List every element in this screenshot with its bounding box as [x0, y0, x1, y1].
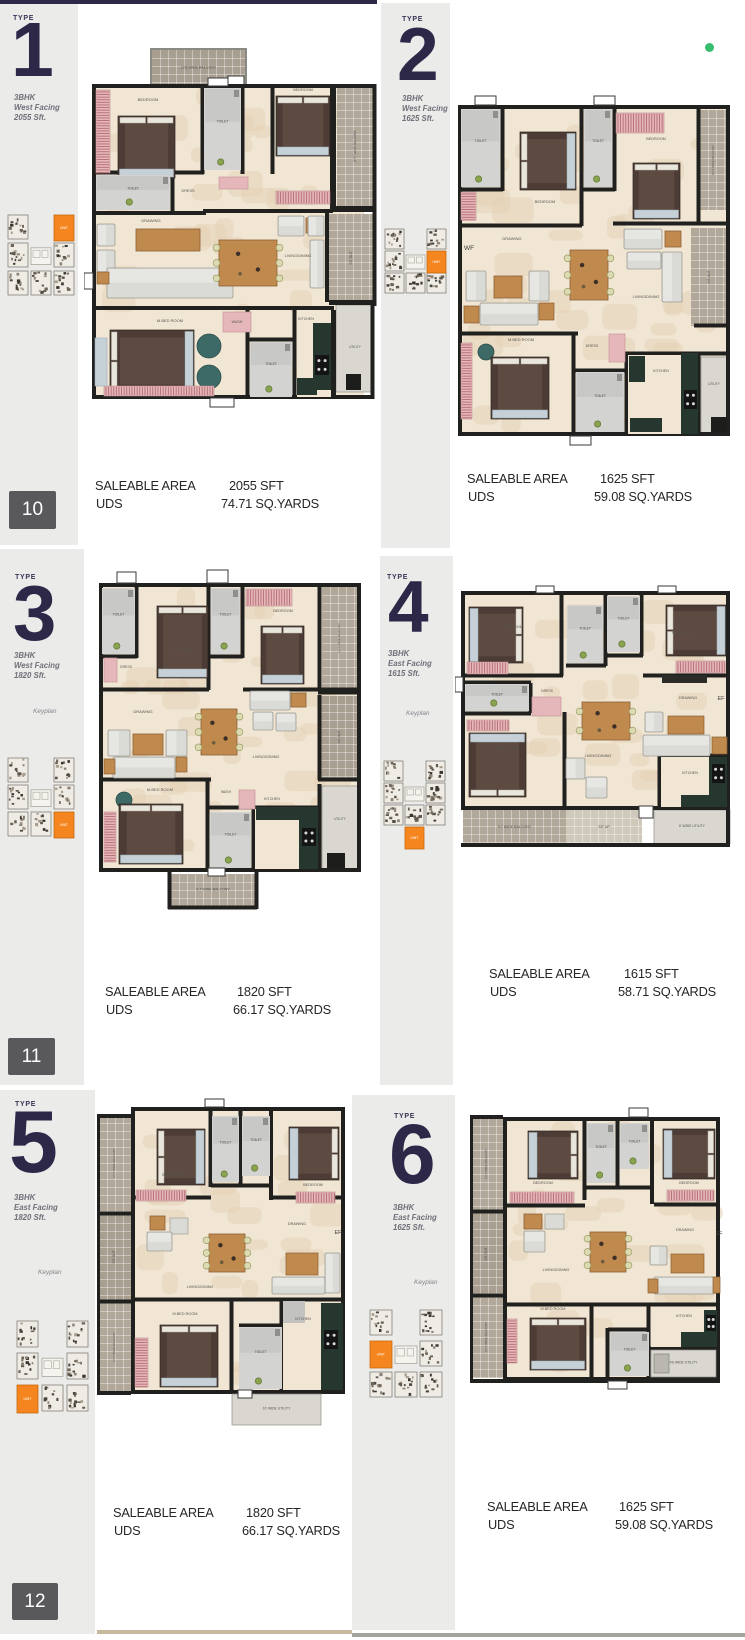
svg-text:TOILET: TOILET — [475, 139, 487, 143]
svg-text:KITCHEN: KITCHEN — [298, 317, 314, 321]
svg-text:BEDROOM: BEDROOM — [162, 1173, 182, 1177]
svg-text:SIT OUT: SIT OUT — [349, 251, 353, 264]
svg-text:BEDROOM: BEDROOM — [293, 88, 313, 92]
svg-text:6 FT WIDE BALCONY: 6 FT WIDE BALCONY — [112, 1332, 116, 1362]
svg-text:UNIT: UNIT — [60, 823, 68, 827]
svg-text:UNIT: UNIT — [377, 1353, 385, 1357]
svg-text:DRESS: DRESS — [120, 665, 132, 669]
svg-text:DRAWING: DRAWING — [676, 1228, 694, 1232]
svg-text:TOILET: TOILET — [217, 119, 229, 123]
svg-text:UNIT: UNIT — [60, 226, 68, 230]
svg-text:BEDROOM: BEDROOM — [679, 1181, 699, 1185]
svg-text:LIVING/DINING: LIVING/DINING — [253, 755, 280, 759]
svg-text:TOILET: TOILET — [127, 187, 139, 191]
svg-text:WF: WF — [464, 245, 474, 252]
svg-text:TOILET: TOILET — [624, 1348, 636, 1352]
svg-text:TOILET: TOILET — [220, 613, 232, 617]
svg-text:TOILET: TOILET — [113, 613, 125, 617]
svg-text:TOILET: TOILET — [629, 1139, 641, 1143]
svg-text:M.BED ROOM: M.BED ROOM — [541, 1307, 566, 1311]
svg-text:BEDROOM: BEDROOM — [303, 1183, 323, 1187]
svg-text:DRESS: DRESS — [541, 689, 553, 693]
svg-text:DRESS: DRESS — [181, 189, 195, 193]
svg-text:SIT UP: SIT UP — [598, 825, 610, 829]
svg-text:DRAWING: DRAWING — [133, 709, 152, 714]
svg-text:SIT OUT: SIT OUT — [112, 1250, 116, 1263]
svg-text:EF: EF — [717, 696, 725, 702]
svg-text:KITCHEN: KITCHEN — [295, 1317, 311, 1321]
svg-text:SIT OUT: SIT OUT — [337, 730, 341, 743]
svg-text:WASH: WASH — [232, 320, 243, 324]
svg-text:LIVING/DINING: LIVING/DINING — [187, 1285, 214, 1289]
svg-text:TOILET: TOILET — [592, 139, 604, 143]
svg-text:9.7 WIDE BALCONY: 9.7 WIDE BALCONY — [196, 888, 230, 892]
svg-text:TOILET: TOILET — [265, 362, 277, 366]
svg-text:BEDROOM: BEDROOM — [273, 609, 293, 613]
svg-text:6 FT WIDE BALCONY: 6 FT WIDE BALCONY — [337, 623, 341, 653]
svg-text:DRAWING: DRAWING — [288, 1222, 306, 1226]
svg-text:UNIT: UNIT — [411, 836, 419, 840]
svg-text:M.BED ROOM: M.BED ROOM — [157, 318, 183, 323]
svg-text:KITCHEN: KITCHEN — [264, 797, 280, 801]
svg-text:BEDROOM: BEDROOM — [533, 1181, 553, 1185]
svg-text:EF: EF — [334, 1230, 342, 1236]
svg-text:UTILITY: UTILITY — [349, 345, 362, 349]
svg-text:M.BED ROOM: M.BED ROOM — [173, 1312, 198, 1316]
svg-text:LIVING/DINING: LIVING/DINING — [585, 754, 612, 758]
svg-text:10' WIDE UTILITY: 10' WIDE UTILITY — [263, 1407, 292, 1411]
svg-text:TOILET: TOILET — [594, 394, 606, 398]
svg-text:TOILET: TOILET — [595, 1145, 607, 1149]
svg-text:TOILET: TOILET — [220, 1141, 232, 1145]
svg-text:12'8 WIDE BALCONY: 12'8 WIDE BALCONY — [181, 66, 217, 70]
svg-text:SIT OUT: SIT OUT — [707, 270, 711, 283]
svg-text:TOILET: TOILET — [250, 1138, 262, 1142]
svg-text:TOILET: TOILET — [225, 833, 237, 837]
svg-text:6 FT WIDE BALCONY: 6 FT WIDE BALCONY — [112, 1148, 116, 1178]
svg-text:UNIT: UNIT — [24, 1397, 32, 1401]
svg-text:DRAWING: DRAWING — [679, 696, 697, 700]
svg-text:TOILET: TOILET — [491, 692, 503, 696]
svg-text:EF: EF — [715, 1231, 723, 1237]
svg-text:TOILET: TOILET — [255, 1350, 267, 1354]
svg-text:BEDROOM: BEDROOM — [646, 137, 666, 141]
svg-text:TOILET: TOILET — [579, 626, 591, 630]
svg-text:8 FT WIDE BALCONY: 8 FT WIDE BALCONY — [711, 145, 715, 175]
svg-text:WASH: WASH — [221, 790, 232, 794]
svg-text:LIVING/DINING: LIVING/DINING — [285, 254, 312, 258]
svg-text:BEDROOM: BEDROOM — [172, 647, 192, 651]
svg-text:BEDROOM: BEDROOM — [672, 631, 692, 635]
svg-text:KITCHEN: KITCHEN — [653, 369, 669, 373]
svg-text:SIT OUT: SIT OUT — [484, 1247, 488, 1260]
svg-text:DRESS: DRESS — [586, 344, 599, 348]
svg-text:6' WIDE UTILITY: 6' WIDE UTILITY — [679, 824, 706, 828]
svg-text:LIVING/DINING: LIVING/DINING — [543, 1268, 570, 1272]
svg-text:M.BED ROOM: M.BED ROOM — [147, 787, 173, 792]
svg-text:UTILITY: UTILITY — [334, 817, 347, 821]
svg-text:TOILET: TOILET — [618, 617, 630, 621]
svg-text:8 FT WIDE BALCONY: 8 FT WIDE BALCONY — [353, 129, 357, 162]
svg-text:BEDROOM: BEDROOM — [535, 199, 556, 204]
svg-text:6 FT WIDE BALCONY: 6 FT WIDE BALCONY — [484, 1149, 488, 1179]
svg-text:UTILITY: UTILITY — [708, 382, 721, 386]
svg-text:M.BED ROOM: M.BED ROOM — [508, 337, 534, 342]
svg-text:6 FT WIDE BALCONY: 6 FT WIDE BALCONY — [484, 1322, 488, 1352]
svg-text:9.7 WIDE BALCONY: 9.7 WIDE BALCONY — [498, 825, 532, 829]
svg-text:BEDROOM: BEDROOM — [503, 625, 523, 629]
svg-text:DRAWING: DRAWING — [141, 218, 160, 223]
svg-text:LIVING/DINING: LIVING/DINING — [633, 295, 660, 299]
svg-text:UNIT: UNIT — [433, 260, 441, 264]
svg-text:M.BED ROOM: M.BED ROOM — [495, 746, 520, 750]
svg-text:DRAWING: DRAWING — [502, 236, 521, 241]
svg-text:KITCHEN: KITCHEN — [676, 1314, 692, 1318]
svg-text:4'6 WIDE UTILITY: 4'6 WIDE UTILITY — [670, 1361, 699, 1365]
svg-text:BEDROOM: BEDROOM — [138, 97, 159, 102]
svg-text:KITCHEN: KITCHEN — [682, 771, 698, 775]
